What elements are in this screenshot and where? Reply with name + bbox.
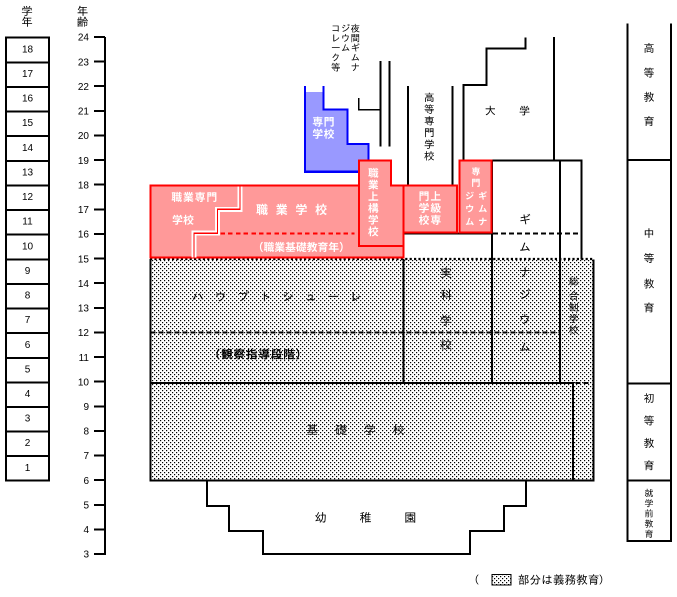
svg-text:2: 2 <box>25 438 31 449</box>
svg-text:17: 17 <box>78 205 90 216</box>
svg-text:20: 20 <box>78 131 90 142</box>
svg-text:7: 7 <box>25 315 31 326</box>
svg-text:12: 12 <box>78 328 90 339</box>
svg-text:14: 14 <box>22 143 34 154</box>
svg-text:17: 17 <box>22 69 34 80</box>
svg-text:5: 5 <box>83 501 89 512</box>
svg-text:24: 24 <box>78 33 90 44</box>
svg-text:15: 15 <box>22 118 34 129</box>
svg-text:11: 11 <box>22 217 33 228</box>
svg-text:21: 21 <box>78 107 90 118</box>
svg-text:14: 14 <box>78 279 90 290</box>
svg-text:5: 5 <box>25 364 31 375</box>
svg-text:10: 10 <box>22 241 34 252</box>
svg-text:6: 6 <box>83 476 89 487</box>
svg-text:18: 18 <box>78 180 90 191</box>
svg-text:10: 10 <box>78 377 90 388</box>
svg-text:13: 13 <box>22 167 34 178</box>
svg-text:16: 16 <box>22 94 34 105</box>
svg-text:19: 19 <box>78 156 90 167</box>
svg-text:9: 9 <box>83 402 89 413</box>
svg-text:15: 15 <box>78 254 90 265</box>
svg-text:16: 16 <box>78 230 90 241</box>
svg-text:23: 23 <box>78 57 90 68</box>
svg-text:1: 1 <box>25 463 31 474</box>
svg-text:18: 18 <box>22 44 34 55</box>
svg-text:8: 8 <box>83 427 89 438</box>
svg-text:7: 7 <box>83 451 89 462</box>
svg-text:4: 4 <box>25 389 31 400</box>
svg-text:6: 6 <box>25 340 31 351</box>
svg-text:3: 3 <box>25 414 31 425</box>
svg-text:22: 22 <box>78 82 90 93</box>
svg-text:3: 3 <box>83 550 89 561</box>
svg-text:8: 8 <box>25 291 31 302</box>
svg-text:12: 12 <box>22 192 34 203</box>
svg-text:4: 4 <box>83 525 89 536</box>
svg-text:13: 13 <box>78 304 90 315</box>
svg-text:9: 9 <box>25 266 31 277</box>
svg-text:11: 11 <box>79 353 90 364</box>
